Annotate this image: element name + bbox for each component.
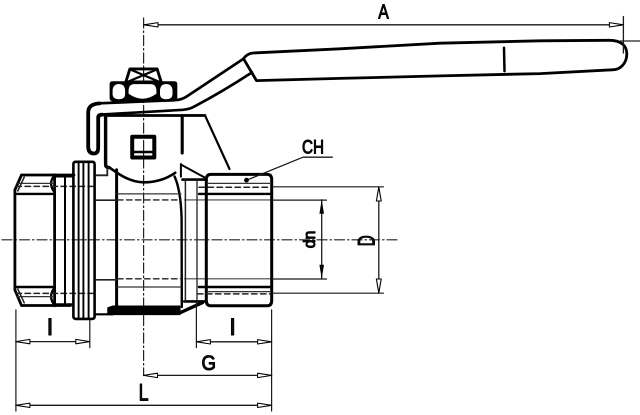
svg-text:G: G xyxy=(202,352,217,375)
svg-text:D: D xyxy=(353,235,380,246)
svg-text:CH: CH xyxy=(302,137,324,159)
svg-text:dn: dn xyxy=(301,231,319,249)
svg-text:L: L xyxy=(139,380,149,407)
svg-text:A: A xyxy=(378,2,389,24)
svg-text:I: I xyxy=(47,314,54,341)
svg-text:I: I xyxy=(229,314,236,341)
